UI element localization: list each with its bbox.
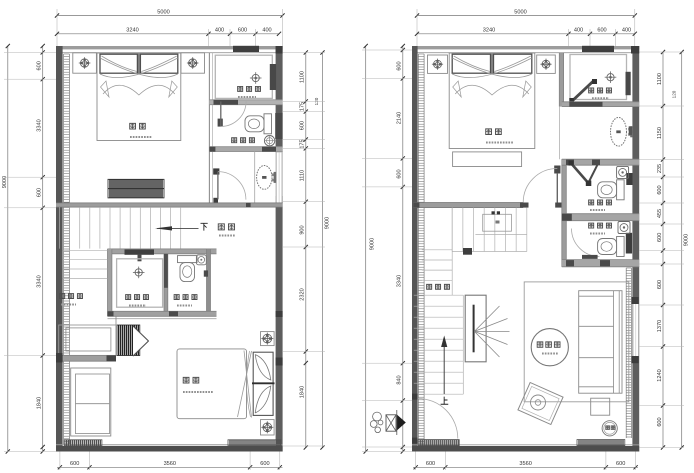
svg-text:1240: 1240 [657, 369, 663, 381]
svg-text:9000: 9000 [325, 217, 331, 229]
svg-text:840: 840 [397, 375, 403, 384]
svg-text:2320: 2320 [300, 288, 306, 300]
svg-text:600: 600 [616, 461, 625, 467]
svg-text:600: 600 [657, 417, 663, 426]
svg-text:5000: 5000 [157, 9, 169, 15]
svg-text:400: 400 [574, 28, 583, 34]
svg-text:600: 600 [426, 461, 435, 467]
svg-text:9000: 9000 [2, 176, 8, 188]
svg-text:235: 235 [657, 164, 663, 173]
svg-text:1370: 1370 [657, 320, 663, 332]
svg-text:3340: 3340 [37, 275, 43, 287]
svg-text:900: 900 [300, 225, 306, 234]
svg-text:600: 600 [37, 188, 43, 197]
svg-text:400: 400 [262, 28, 271, 34]
svg-text:5000: 5000 [514, 9, 526, 15]
svg-text:600: 600 [37, 61, 43, 70]
svg-text:1100: 1100 [657, 73, 663, 85]
svg-text:600: 600 [397, 61, 403, 70]
svg-text:3340: 3340 [37, 119, 43, 131]
svg-text:175: 175 [300, 102, 306, 111]
svg-text:600: 600 [597, 28, 606, 34]
svg-text:9000: 9000 [370, 238, 376, 250]
svg-text:1100: 1100 [300, 71, 306, 83]
svg-text:400: 400 [215, 28, 224, 34]
svg-text:175: 175 [300, 139, 306, 148]
svg-text:3560: 3560 [519, 461, 531, 467]
svg-text:3340: 3340 [397, 275, 403, 287]
svg-text:1150: 1150 [657, 127, 663, 139]
svg-text:3240: 3240 [126, 28, 138, 34]
svg-text:9000: 9000 [684, 234, 690, 246]
svg-text:1840: 1840 [300, 386, 306, 398]
svg-text:400: 400 [622, 28, 631, 34]
svg-text:600: 600 [300, 121, 306, 130]
svg-text:455: 455 [657, 209, 663, 218]
svg-text:1110: 1110 [300, 170, 306, 182]
svg-text:600: 600 [397, 169, 403, 178]
svg-text:600: 600 [657, 185, 663, 194]
svg-text:3560: 3560 [164, 461, 176, 467]
svg-text:600: 600 [657, 233, 663, 242]
svg-text:600: 600 [657, 280, 663, 289]
svg-text:120: 120 [672, 90, 677, 98]
svg-text:3240: 3240 [483, 28, 495, 34]
svg-text:600: 600 [260, 461, 269, 467]
svg-text:1840: 1840 [37, 397, 43, 409]
svg-text:2140: 2140 [397, 112, 403, 124]
svg-text:600: 600 [70, 461, 79, 467]
svg-text:600: 600 [238, 28, 247, 34]
